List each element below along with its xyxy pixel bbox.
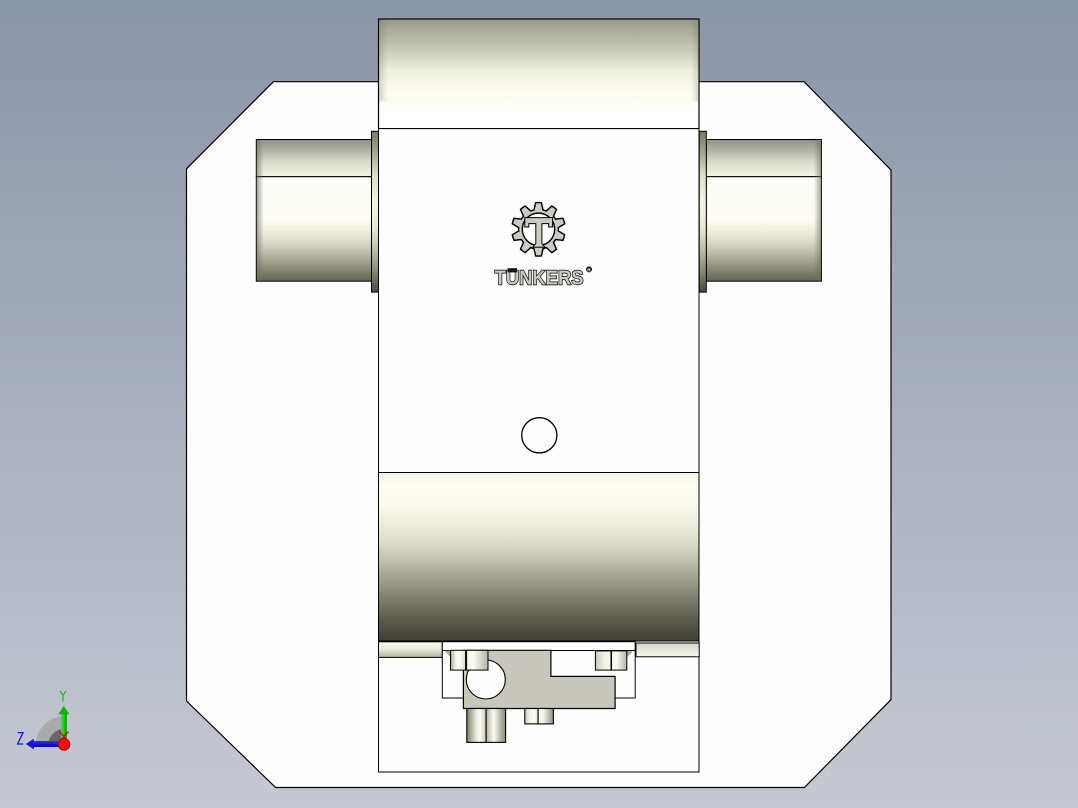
svg-text:R: R	[587, 267, 591, 273]
